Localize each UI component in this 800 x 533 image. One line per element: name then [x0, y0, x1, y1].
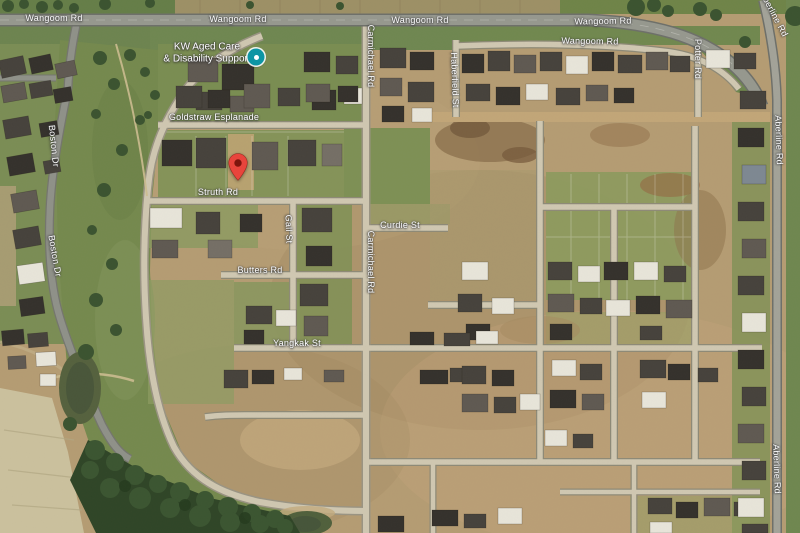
- red-map-pin-icon[interactable]: [228, 153, 248, 181]
- satellite-map-view[interactable]: KW Aged Care & Disability Support Wangoo…: [0, 0, 800, 533]
- place-dot-icon[interactable]: [248, 49, 265, 66]
- satellite-imagery: [0, 0, 800, 533]
